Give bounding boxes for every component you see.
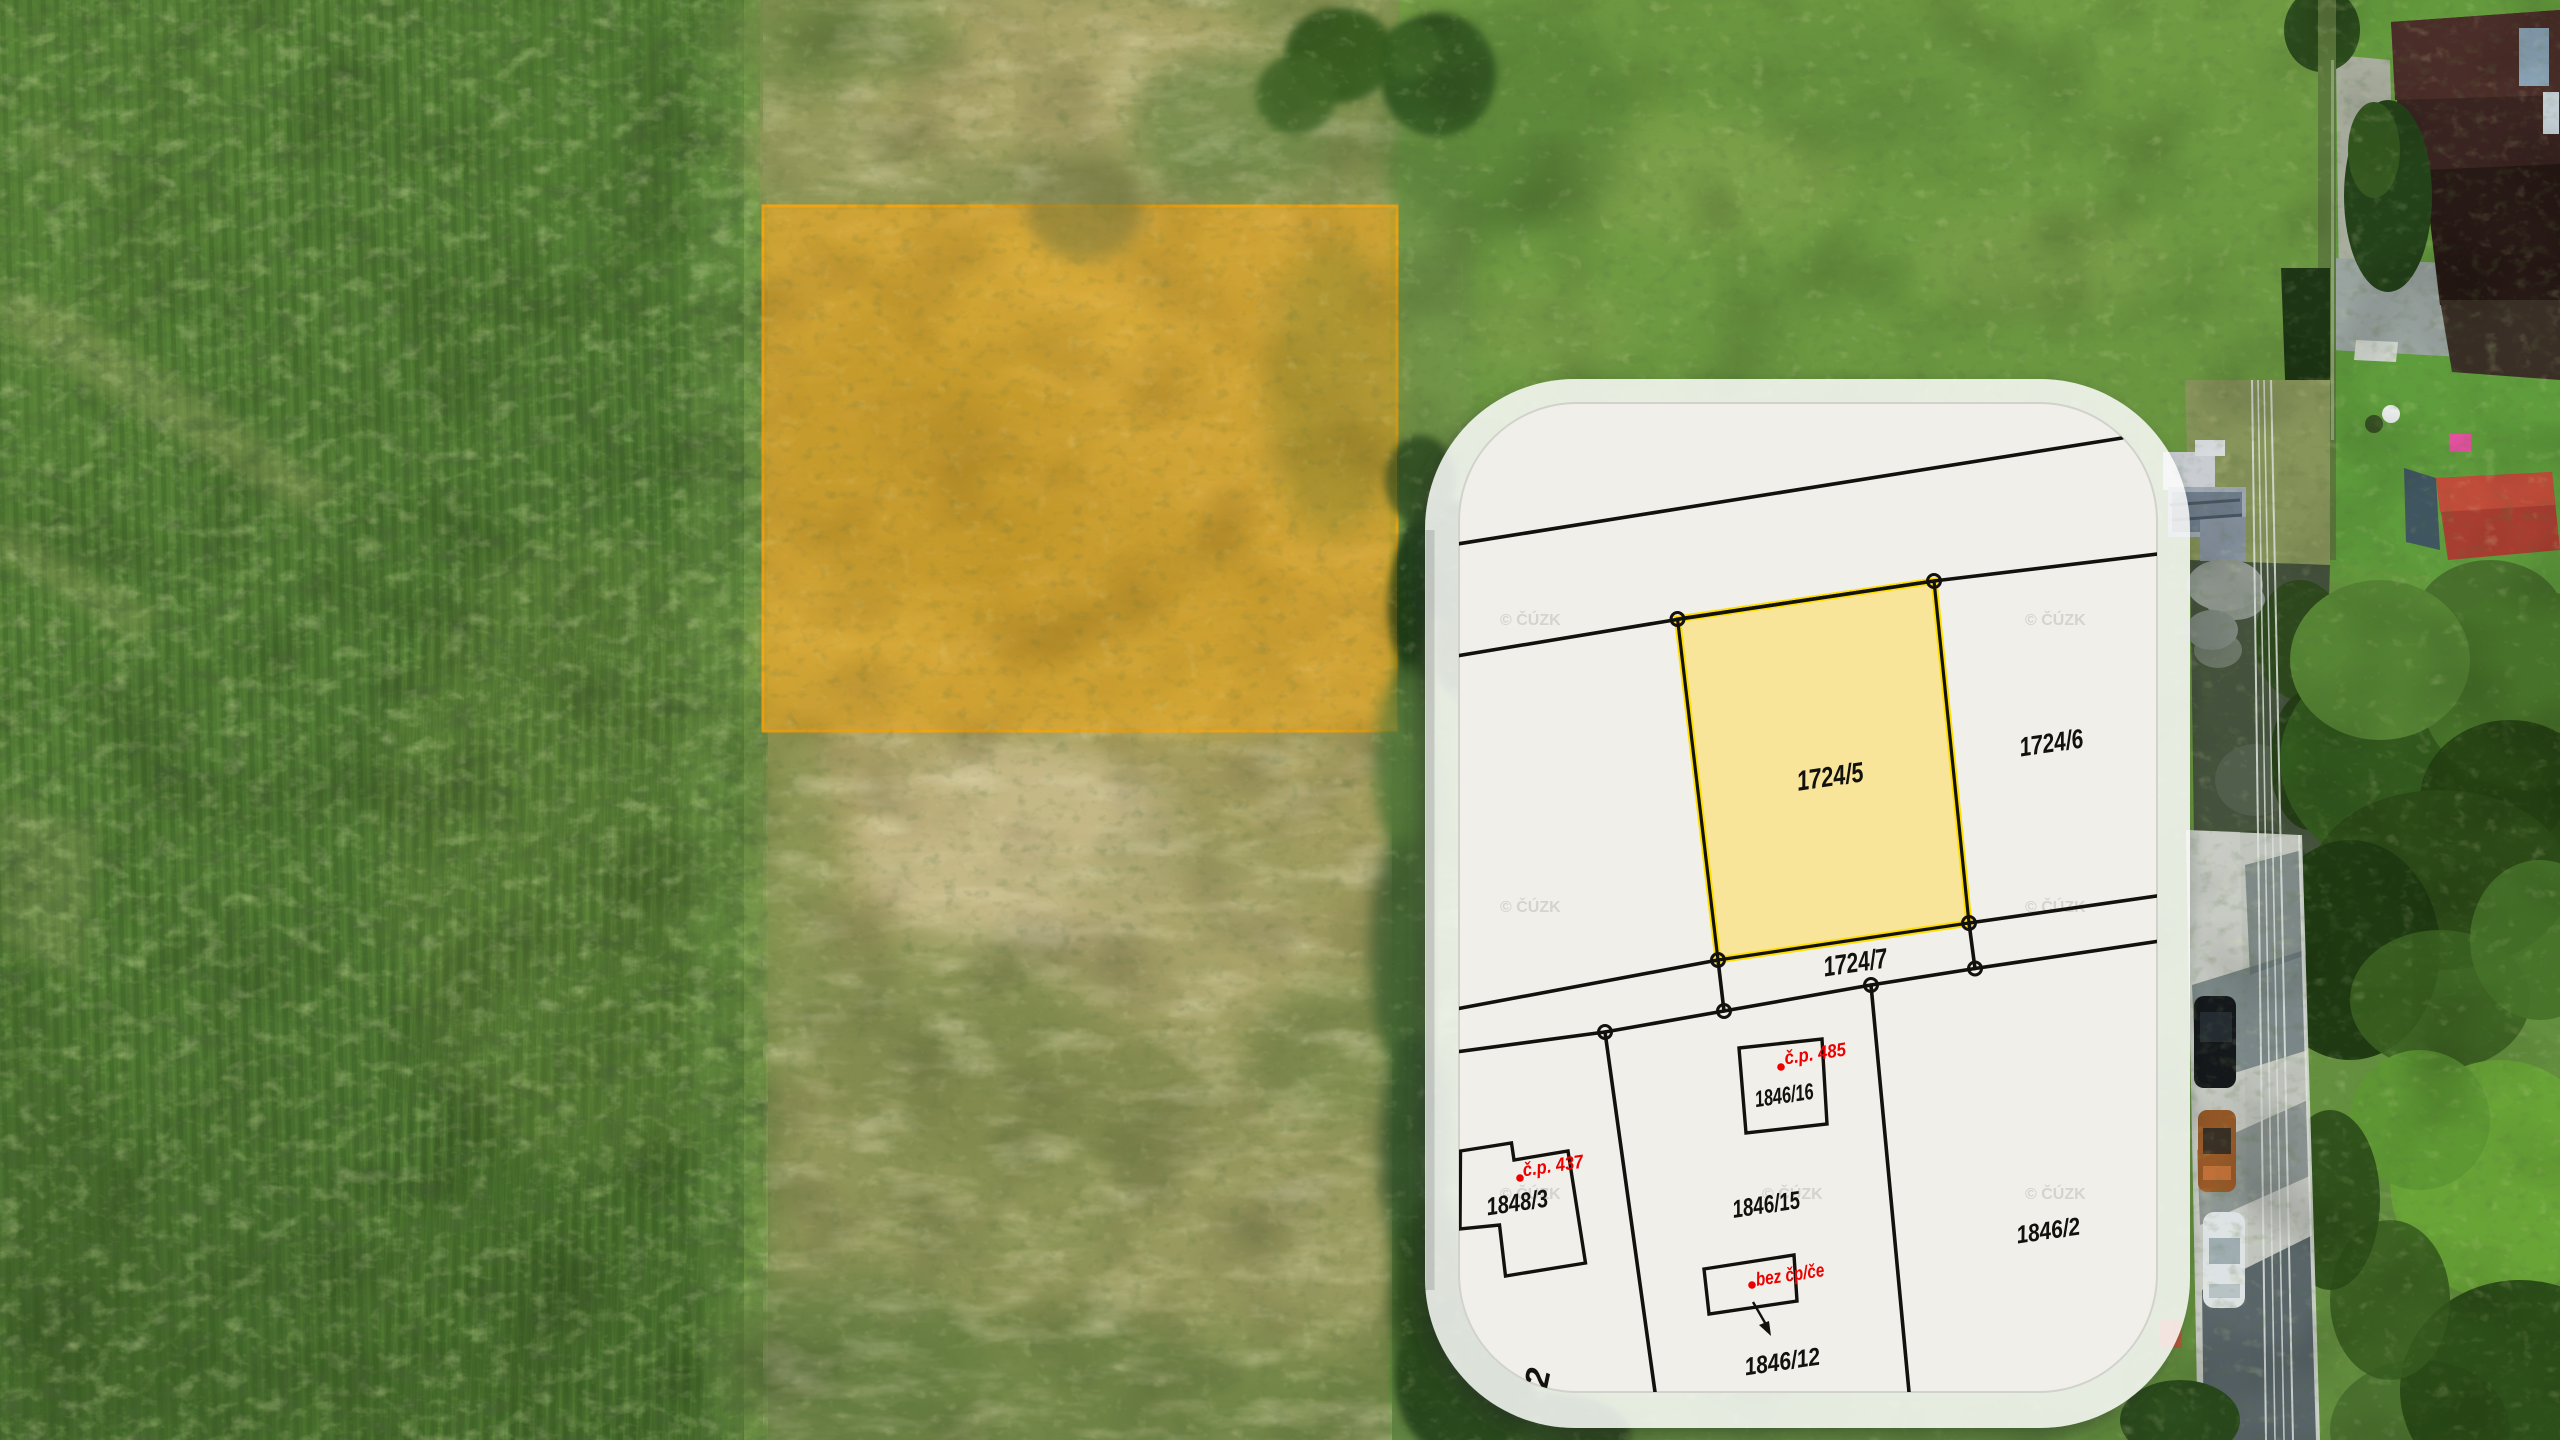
svg-text:© ČÚZK: © ČÚZK (1500, 897, 1561, 916)
svg-text:© ČÚZK: © ČÚZK (2025, 1184, 2086, 1203)
svg-text:© ČÚZK: © ČÚZK (2025, 610, 2086, 629)
svg-text:© ČÚZK: © ČÚZK (1500, 610, 1561, 629)
